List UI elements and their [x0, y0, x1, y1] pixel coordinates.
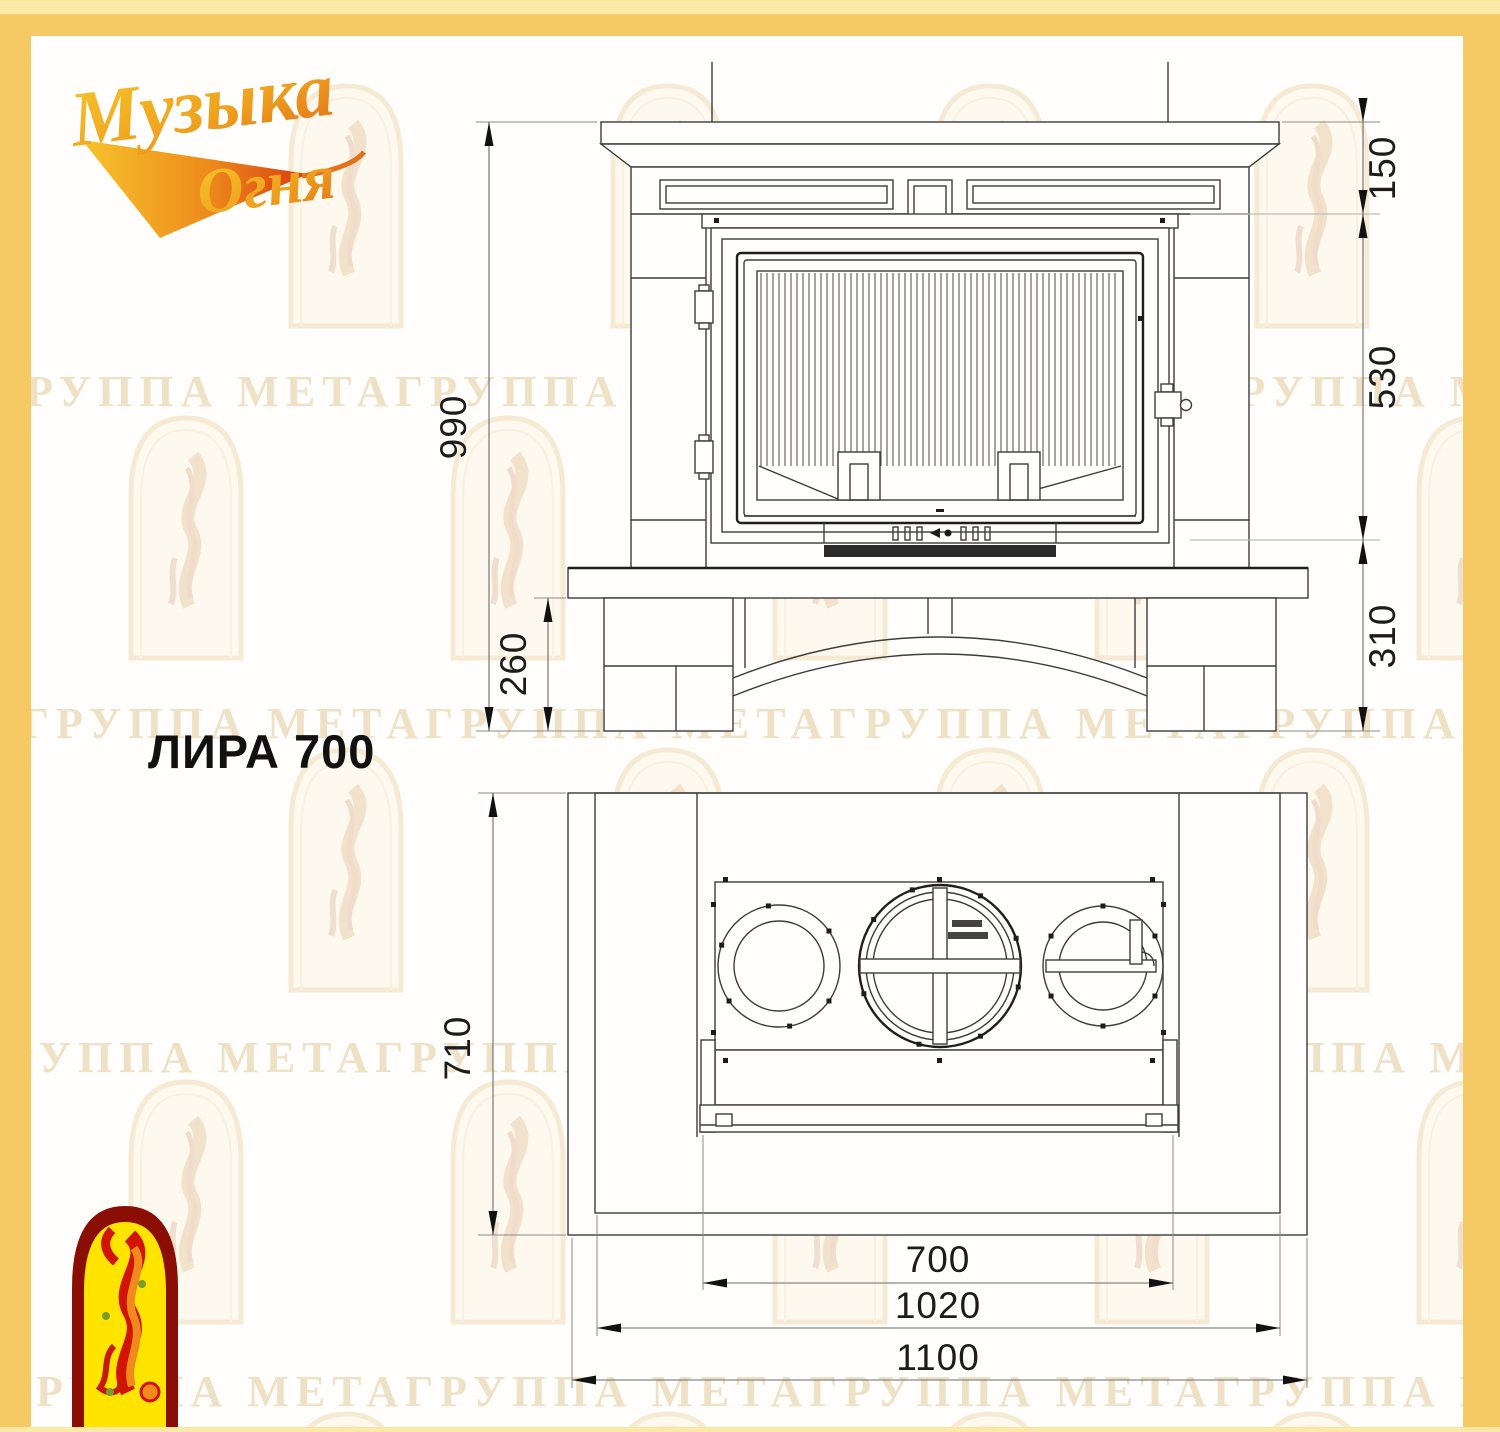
page: { "page": { "border_color": "#F5C963", "… [0, 0, 1500, 1427]
mantel-shelf [601, 122, 1279, 144]
dim-label-530: 530 [1362, 345, 1403, 410]
dim-label-1020: 1020 [895, 1285, 981, 1326]
front-elevation-view: 990 260 150 530 310 [433, 62, 1403, 731]
firebox-insert [695, 214, 1192, 557]
base-arch [733, 637, 1147, 678]
dim-label-990: 990 [433, 395, 474, 460]
dim-label-260: 260 [493, 632, 534, 697]
ash-lip-bar [824, 545, 1056, 557]
brand-logo: Музыка Огня [52, 48, 372, 248]
arch-flame-emblem [70, 1196, 180, 1427]
mantel-chamfer [601, 144, 1279, 167]
arch-flame-emblem-icon [70, 1196, 180, 1427]
model-title: ЛИРА 700 [148, 724, 375, 779]
plan-view: 710 700 1020 1100 [437, 793, 1307, 1388]
dim-label-1100: 1100 [896, 1337, 980, 1378]
dim-label-150: 150 [1362, 136, 1403, 201]
base-legs [604, 598, 1276, 731]
door-foot-right [998, 452, 1040, 500]
music-of-fire-logo-icon: Музыка Огня [52, 48, 372, 248]
hearth-slab [568, 568, 1308, 598]
insert-plan [700, 877, 1178, 1132]
port-centre-damper [859, 885, 1021, 1047]
stamp-mark [952, 920, 982, 927]
logo-word-2: Огня [193, 141, 339, 228]
door-foot-left [838, 452, 880, 500]
dim-label-310: 310 [1362, 604, 1403, 669]
dim-label-700: 700 [906, 1239, 971, 1280]
dim-label-710: 710 [437, 1016, 478, 1081]
